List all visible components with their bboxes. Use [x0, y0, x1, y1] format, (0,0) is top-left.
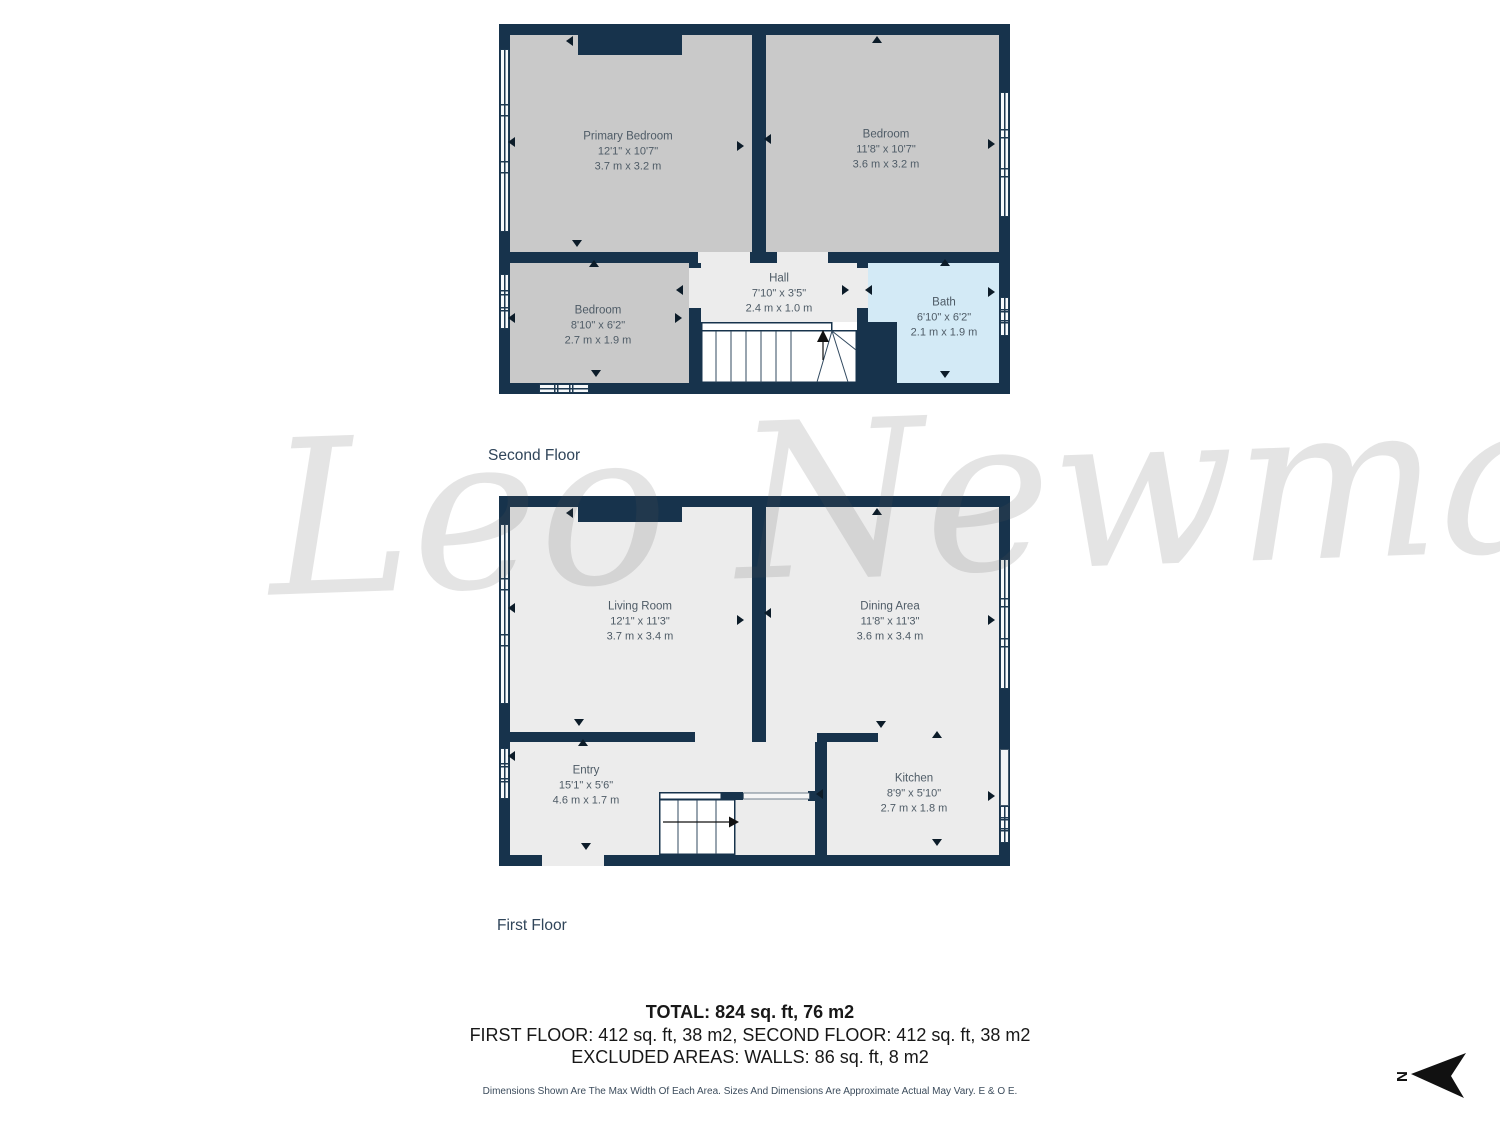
door-marker-icon — [764, 608, 771, 618]
room-label-kitchen: Kitchen 8'9" x 5'10" 2.7 m x 1.8 m — [881, 772, 948, 817]
window — [500, 524, 509, 704]
north-arrow-icon — [1411, 1053, 1467, 1099]
wall — [857, 322, 897, 383]
compass: N — [1396, 1053, 1467, 1099]
door-marker-icon — [737, 141, 744, 151]
room-label-hall: Hall 7'10" x 3'5" 2.4 m x 1.0 m — [746, 272, 813, 317]
door-marker-icon — [842, 285, 849, 295]
door-marker-icon — [566, 508, 573, 518]
window — [539, 384, 589, 393]
staircase-first-floor — [659, 792, 810, 855]
wall — [510, 732, 695, 742]
door-marker-icon — [764, 134, 771, 144]
wall-light-section — [1000, 749, 1009, 806]
north-label: N — [1393, 1071, 1410, 1082]
window — [1000, 297, 1009, 336]
door-opening — [698, 252, 750, 263]
door-marker-icon — [940, 259, 950, 266]
window — [1000, 806, 1009, 843]
door-marker-icon — [932, 839, 942, 846]
room-label-entry: Entry 15'1" x 5'6" 4.6 m x 1.7 m — [553, 764, 620, 809]
door-marker-icon — [574, 719, 584, 726]
room-label-bedroom-3: Bedroom 8'10" x 6'2" 2.7 m x 1.9 m — [565, 304, 632, 349]
summary-excluded: EXCLUDED AREAS: WALLS: 86 sq. ft, 8 m2 — [0, 1046, 1500, 1069]
wall — [510, 252, 999, 263]
door-marker-icon — [508, 313, 515, 323]
door-marker-icon — [988, 791, 995, 801]
door-marker-icon — [508, 137, 515, 147]
door-marker-icon — [816, 789, 823, 799]
staircase-second-floor — [701, 322, 857, 383]
room-label-dining-area: Dining Area 11'8" x 11'3" 3.6 m x 3.4 m — [857, 600, 924, 645]
door-marker-icon — [508, 603, 515, 613]
door-marker-icon — [932, 731, 942, 738]
wall — [817, 733, 878, 742]
door-marker-icon — [988, 139, 995, 149]
floorplan-page: { "watermark": "Leo Newma", "floors": [ … — [0, 0, 1500, 1125]
door-marker-icon — [676, 285, 683, 295]
door-marker-icon — [988, 287, 995, 297]
door-opening — [777, 252, 828, 263]
door-marker-icon — [591, 370, 601, 377]
door-marker-icon — [865, 285, 872, 295]
second-floor-plan: Primary Bedroom 12'1" x 10'7" 3.7 m x 3.… — [499, 24, 1010, 394]
door-marker-icon — [589, 260, 599, 267]
room-label-primary-bedroom: Primary Bedroom 12'1" x 10'7" 3.7 m x 3.… — [583, 130, 672, 175]
door-marker-icon — [581, 843, 591, 850]
room-label-living-room: Living Room 12'1" x 11'3" 3.7 m x 3.4 m — [607, 600, 674, 645]
door-marker-icon — [578, 739, 588, 746]
wall — [752, 35, 766, 263]
floor-title-first: First Floor — [497, 917, 567, 935]
door-opening — [689, 268, 701, 308]
door-marker-icon — [988, 615, 995, 625]
door-marker-icon — [872, 36, 882, 43]
disclaimer: Dimensions Shown Are The Max Width Of Ea… — [0, 1081, 1500, 1104]
summary-total: TOTAL: 824 sq. ft, 76 m2 — [0, 1001, 1500, 1024]
room-label-bath: Bath 6'10" x 6'2" 2.1 m x 1.9 m — [911, 296, 978, 341]
room-label-bedroom-2: Bedroom 11'8" x 10'7" 3.6 m x 3.2 m — [853, 128, 920, 173]
wall — [752, 507, 766, 742]
floor-title-second: Second Floor — [488, 447, 580, 465]
wall — [578, 35, 682, 55]
door-marker-icon — [572, 240, 582, 247]
window — [1000, 92, 1009, 217]
door-marker-icon — [508, 751, 515, 761]
window — [1000, 559, 1009, 689]
door-marker-icon — [940, 371, 950, 378]
area-summary: TOTAL: 824 sq. ft, 76 m2 FIRST FLOOR: 41… — [0, 1001, 1500, 1103]
door-marker-icon — [566, 36, 573, 46]
door-marker-icon — [872, 508, 882, 515]
door-marker-icon — [675, 313, 682, 323]
door-marker-icon — [876, 721, 886, 728]
wall — [578, 507, 682, 522]
first-floor-plan: Living Room 12'1" x 11'3" 3.7 m x 3.4 m … — [499, 496, 1010, 866]
door-opening — [542, 855, 604, 866]
summary-floors: FIRST FLOOR: 412 sq. ft, 38 m2, SECOND F… — [0, 1024, 1500, 1047]
door-marker-icon — [737, 615, 744, 625]
